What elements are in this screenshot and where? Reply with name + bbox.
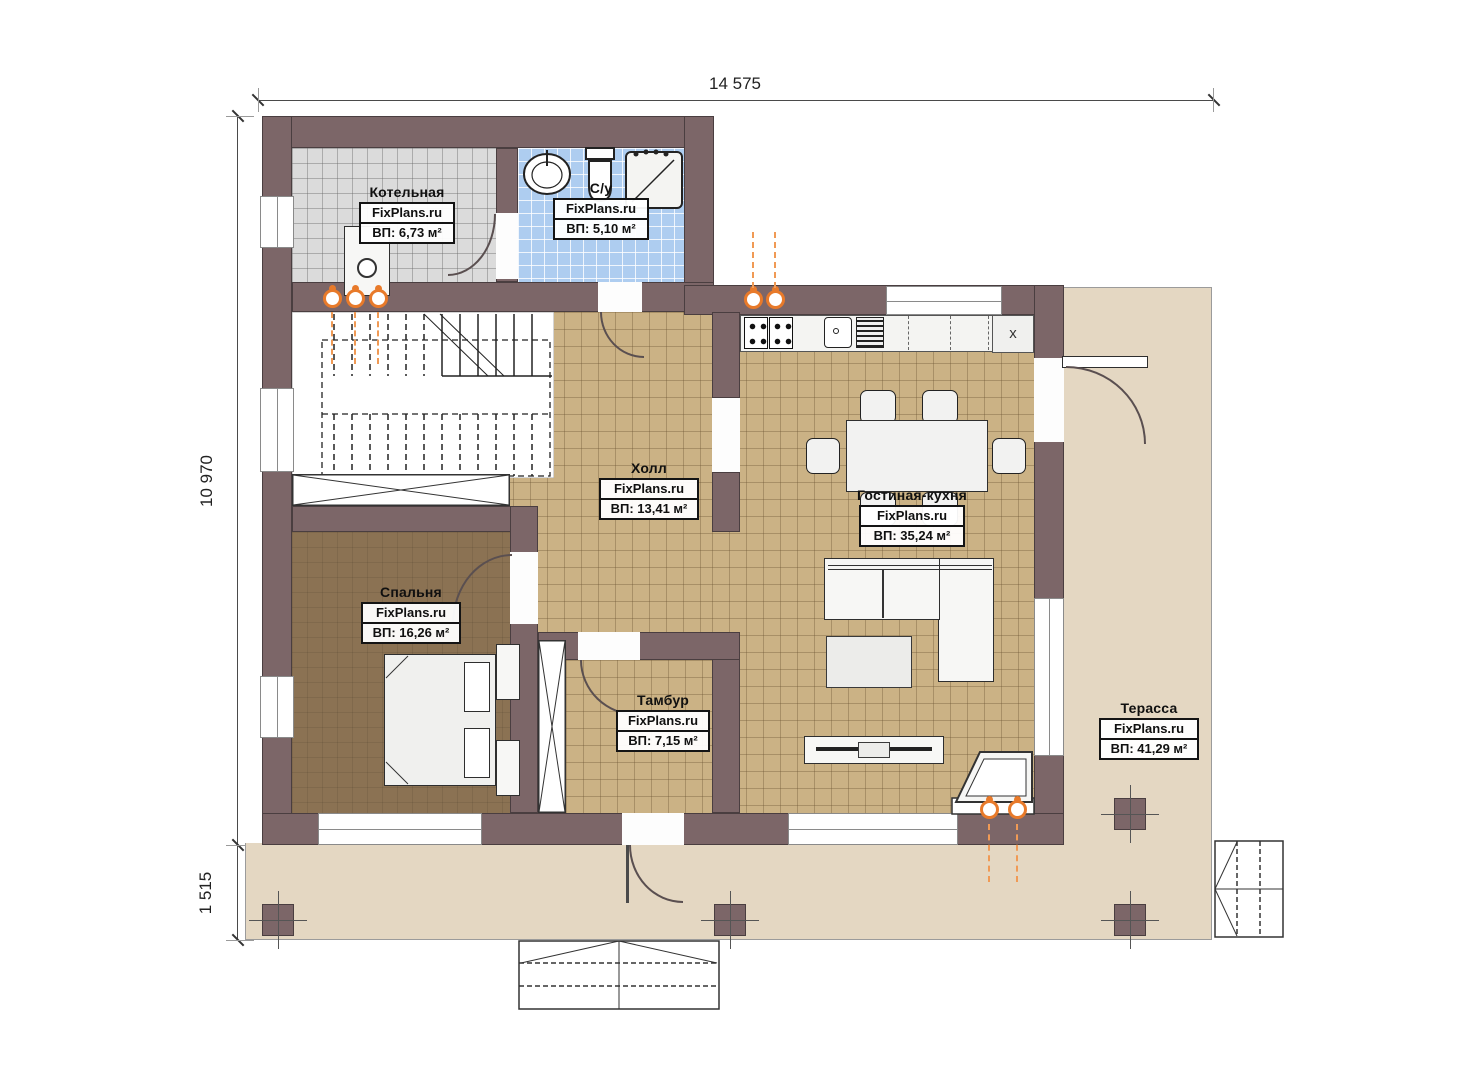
pillow — [464, 728, 490, 778]
room-area: ВП: 13,41 м² — [601, 498, 697, 518]
room-info-box: FixPlans.ru ВП: 5,10 м² — [553, 198, 649, 240]
nightstand — [496, 644, 520, 700]
entrance-door-leaf — [626, 845, 629, 903]
heating-riser-icon — [980, 800, 999, 819]
room-name: Гостиная-кухня — [848, 487, 976, 503]
terrace-column — [1114, 798, 1146, 830]
opening-hall-living — [712, 398, 740, 472]
dimension-line-left-main — [237, 116, 238, 845]
boiler-dial-icon — [357, 258, 377, 278]
room-name: Тамбур — [608, 692, 718, 708]
heating-riser-icon — [744, 290, 763, 309]
riser-pipe-line — [354, 312, 356, 364]
extension-line — [258, 88, 259, 112]
window-living-bottom — [788, 813, 958, 845]
faucet-icon — [833, 328, 839, 334]
riser-pipe-line — [988, 824, 990, 882]
dining-chair — [806, 438, 840, 474]
window-boiler — [260, 196, 294, 248]
extension-line — [226, 116, 254, 117]
entrance-steps-front — [518, 940, 720, 1010]
room-label-bathroom: С/у FixPlans.ru ВП: 5,10 м² — [544, 180, 658, 240]
room-name: Котельная — [346, 184, 468, 200]
dining-chair — [860, 390, 896, 424]
room-label-hall: Холл FixPlans.ru ВП: 13,41 м² — [590, 460, 708, 520]
terrace-column — [1114, 904, 1146, 936]
extension-line — [1213, 88, 1214, 112]
floor-plan: 14 575 10 970 1 515 — [0, 0, 1473, 1080]
stove-icon — [744, 317, 768, 349]
room-brand: FixPlans.ru — [363, 604, 459, 622]
window-bedroom-bottom — [318, 813, 482, 845]
room-brand: FixPlans.ru — [861, 507, 963, 525]
room-brand: FixPlans.ru — [361, 204, 453, 222]
room-name: С/у — [544, 180, 658, 196]
room-area: ВП: 7,15 м² — [618, 730, 708, 750]
wall-bedroom-top — [292, 506, 538, 532]
riser-pipe-line — [774, 232, 776, 288]
door-gap-tambour — [578, 632, 640, 660]
dimension-width-total: 14 575 — [600, 74, 870, 94]
room-name: Спальня — [352, 584, 470, 600]
heating-riser-icon — [1008, 800, 1027, 819]
room-name: Терасса — [1090, 700, 1208, 716]
blanket-fold — [384, 654, 414, 786]
dimension-line-left-porch — [237, 845, 238, 940]
dimension-line-top — [258, 100, 1214, 101]
tv-base — [858, 742, 890, 758]
stove-icon — [769, 317, 793, 349]
dining-chair — [992, 438, 1026, 474]
room-info-box: FixPlans.ru ВП: 41,29 м² — [1099, 718, 1199, 760]
riser-pipe-line — [377, 312, 379, 364]
room-area: ВП: 35,24 м² — [861, 525, 963, 545]
fridge-cabinet: x — [992, 315, 1034, 353]
room-label-bedroom: Спальня FixPlans.ru ВП: 16,26 м² — [352, 584, 470, 644]
room-info-box: FixPlans.ru ВП: 6,73 м² — [359, 202, 455, 244]
cabinet-mark-label: x — [1009, 325, 1017, 342]
heating-riser-icon — [766, 290, 785, 309]
riser-pipe-line — [331, 312, 333, 364]
room-info-box: FixPlans.ru ВП: 35,24 м² — [859, 505, 965, 547]
room-name: Холл — [590, 460, 708, 476]
cabinet-divider — [950, 316, 951, 350]
cabinet-divider — [988, 316, 989, 350]
room-brand: FixPlans.ru — [618, 712, 708, 730]
room-label-tambour: Тамбур FixPlans.ru ВП: 7,15 м² — [608, 692, 718, 752]
drainboard-icon — [856, 317, 884, 348]
heating-riser-icon — [346, 289, 365, 308]
room-area: ВП: 41,29 м² — [1101, 738, 1197, 758]
door-gap-boiler — [496, 213, 518, 279]
dining-table — [846, 420, 988, 492]
hall-wardrobe — [292, 474, 510, 506]
wall-hall-living-upper — [712, 312, 740, 398]
room-area: ВП: 16,26 м² — [363, 622, 459, 642]
sofa-backrest — [828, 565, 992, 570]
door-gap-terrace — [1034, 358, 1064, 442]
extension-line — [226, 940, 254, 941]
room-brand: FixPlans.ru — [555, 200, 647, 218]
pillow — [464, 662, 490, 712]
riser-pipe-line — [752, 232, 754, 288]
room-brand: FixPlans.ru — [601, 480, 697, 498]
dimension-height-porch: 1 515 — [196, 853, 216, 933]
room-info-box: FixPlans.ru ВП: 7,15 м² — [616, 710, 710, 752]
room-area: ВП: 6,73 м² — [361, 222, 453, 242]
door-gap-bedroom — [510, 552, 538, 624]
tambour-closet — [538, 640, 566, 813]
window-bedroom-left — [260, 676, 294, 738]
room-info-box: FixPlans.ru ВП: 13,41 м² — [599, 478, 699, 520]
room-label-terrace: Терасса FixPlans.ru ВП: 41,29 м² — [1090, 700, 1208, 760]
riser-pipe-line — [1016, 824, 1018, 882]
coffee-table — [826, 636, 912, 688]
entrance-steps-side — [1214, 840, 1284, 938]
room-label-living-kitchen: Гостиная-кухня FixPlans.ru ВП: 35,24 м² — [848, 487, 976, 547]
window-living-right — [1034, 598, 1064, 756]
wall-hall-living-pier — [712, 472, 740, 532]
porch-column — [714, 904, 746, 936]
room-label-boiler: Котельная FixPlans.ru ВП: 6,73 м² — [346, 184, 468, 244]
room-info-box: FixPlans.ru ВП: 16,26 м² — [361, 602, 461, 644]
porch-column — [262, 904, 294, 936]
wall-kitchen-top — [684, 285, 1064, 315]
door-gap-bathroom — [598, 282, 642, 312]
door-gap-entrance — [622, 813, 684, 845]
window-stairs — [260, 388, 294, 472]
dining-chair — [922, 390, 958, 424]
sofa-chaise — [938, 558, 994, 682]
sofa-seat-divider — [882, 570, 884, 618]
dimension-height-main: 10 970 — [197, 436, 217, 526]
nightstand — [496, 740, 520, 796]
wall-top-block — [262, 116, 714, 148]
cabinet-divider — [908, 316, 909, 350]
window-kitchen — [886, 286, 1002, 315]
heating-riser-icon — [369, 289, 388, 308]
room-area: ВП: 5,10 м² — [555, 218, 647, 238]
room-brand: FixPlans.ru — [1101, 720, 1197, 738]
heating-riser-icon — [323, 289, 342, 308]
